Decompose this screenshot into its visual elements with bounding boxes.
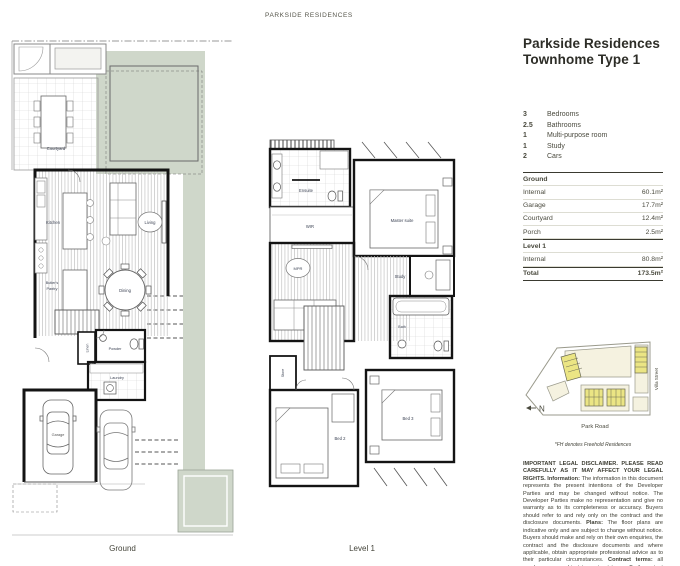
- area-section-ground: Ground: [523, 173, 663, 186]
- area-value: 12.4m²: [642, 215, 663, 222]
- spec-qty: 1: [523, 132, 547, 139]
- stairs: [55, 310, 99, 334]
- area-section-level1: Level 1: [523, 239, 663, 253]
- park-road-label: Park Road: [581, 424, 608, 430]
- roof-hatch-top: [362, 142, 441, 158]
- walk-in-robe: WIR: [270, 207, 354, 243]
- spec-label: Multi-purpose room: [547, 132, 663, 139]
- courtyard: Courtyard: [14, 78, 98, 170]
- island-bench-icon: [63, 193, 87, 249]
- garage-label: Garage: [52, 433, 65, 437]
- wardrobe-icon: [332, 394, 354, 422]
- area-value: 2.5m²: [646, 229, 663, 236]
- ground-caption: Ground: [10, 544, 235, 553]
- bathroom: Bath: [390, 296, 452, 358]
- area-row: Garage 17.7m²: [523, 200, 663, 213]
- dining-label: Dining: [119, 288, 132, 293]
- bedside-table-icon: [443, 246, 452, 254]
- area-row-total: Total 173.5m²: [523, 267, 663, 280]
- master-suite: Master suite: [354, 160, 454, 256]
- area-row: Internal 80.8m²: [523, 253, 663, 266]
- area-label: Internal: [523, 189, 546, 196]
- area-label: Internal: [523, 256, 546, 263]
- washer-icon: [104, 382, 116, 394]
- page-title: Parkside Residences Townhome Type 1: [523, 36, 663, 67]
- spec-qty: 1: [523, 143, 547, 150]
- bed3-label: Bed 3: [403, 416, 415, 421]
- area-label: Garage: [523, 202, 546, 209]
- mpr-label: MPR: [294, 266, 303, 271]
- bed2-label: Bed 2: [335, 436, 347, 441]
- powder-room: Powder: [96, 330, 145, 362]
- site-map-svg: N Villa Street Park Road: [523, 335, 663, 435]
- spec-row-bathrooms: 2.5 Bathrooms: [523, 120, 663, 131]
- spec-list: 3 Bedrooms 2.5 Bathrooms 1 Multi-purpose…: [523, 109, 663, 162]
- villa-street-label: Villa Street: [654, 367, 659, 390]
- title-line2: Townhome Type 1: [523, 52, 663, 68]
- area-section-label: Level 1: [523, 243, 546, 250]
- ensuite: Ensuite: [270, 149, 350, 207]
- toilet-icon: [328, 191, 336, 201]
- basin-icon: [273, 183, 280, 191]
- level1-caption: Level 1: [262, 544, 462, 553]
- ensuite-label: Ensuite: [299, 188, 314, 193]
- area-label: Porch: [523, 229, 541, 236]
- bath-label: Bath: [398, 325, 405, 329]
- total-label: Total: [523, 270, 539, 277]
- bedroom-2: Bed 2: [270, 390, 358, 486]
- tv-unit-icon: [292, 245, 332, 249]
- basin-icon: [398, 340, 406, 348]
- sofa-icon: [110, 183, 136, 235]
- desk-icon: [436, 260, 450, 290]
- area-value: 80.8m²: [642, 256, 663, 263]
- spec-qty: 2: [523, 153, 547, 160]
- brochure-page: PARKSIDE RESIDENCES: [0, 0, 680, 566]
- wir-label: WIR: [306, 224, 314, 229]
- chair-icon: [425, 271, 433, 279]
- disclaimer-text: The information in this document represe…: [523, 476, 663, 527]
- level1-floor-plan: Ensuite WIR Master suite: [262, 138, 462, 493]
- car-icon: [97, 410, 135, 490]
- study-label: Study: [395, 274, 407, 279]
- level1-floor-svg: Ensuite WIR Master suite: [262, 138, 462, 493]
- spec-label: Bedrooms: [547, 111, 663, 118]
- store-label: Store: [281, 369, 285, 378]
- bedside-table-icon: [370, 376, 379, 384]
- bedside-table-icon: [443, 178, 452, 186]
- ground-floor-plan: Courtyard Kitchen: [10, 38, 235, 538]
- area-row: Porch 2.5m²: [523, 226, 663, 239]
- roof-hatch-bottom: [374, 468, 447, 486]
- toilet-icon: [434, 341, 442, 351]
- map-footnote: *FH denotes Freehold Residences: [523, 442, 663, 448]
- bathtub-icon: [393, 298, 449, 315]
- tv-unit-icon: [162, 201, 166, 243]
- balcony-screen: [270, 140, 334, 149]
- toilet-icon: [130, 339, 138, 349]
- powder-label: Powder: [109, 347, 123, 351]
- cooktop-icon: [35, 243, 47, 273]
- store-cupboard: Store: [270, 356, 296, 390]
- area-section-label: Ground: [523, 176, 548, 183]
- title-line1: Parkside Residences: [523, 36, 663, 52]
- area-value: 17.7m²: [642, 202, 663, 209]
- spec-row-mpr: 1 Multi-purpose room: [523, 131, 663, 142]
- dining-area: Dining: [99, 264, 151, 316]
- stairs: [304, 306, 344, 370]
- north-label: N: [539, 404, 545, 413]
- courtyard-label: Courtyard: [47, 146, 66, 151]
- car-icon: [40, 400, 76, 474]
- site-map: N Villa Street Park Road *FH denotes Fre…: [523, 335, 663, 448]
- porch: [14, 44, 106, 74]
- brand-header: PARKSIDE RESIDENCES: [265, 12, 353, 19]
- basin-icon: [100, 335, 107, 342]
- spec-row-cars: 2 Cars: [523, 152, 663, 163]
- disclaimer-plans-label: Plans:: [586, 520, 607, 526]
- linen-label: Linen: [86, 344, 90, 353]
- area-table: Ground Internal 60.1m² Garage 17.7m² Cou…: [523, 172, 663, 281]
- basin-icon: [273, 161, 280, 169]
- total-value: 173.5m²: [638, 270, 663, 277]
- spec-row-study: 1 Study: [523, 141, 663, 152]
- laundry-label: Laundry: [110, 376, 124, 380]
- spec-qty: 2.5: [523, 122, 547, 129]
- bed-icon: [382, 390, 442, 440]
- linen-cupboard: Linen: [78, 332, 95, 364]
- master-suite-label: Master suite: [391, 218, 414, 223]
- shower-icon: [320, 151, 348, 169]
- area-label: Courtyard: [523, 215, 553, 222]
- legal-disclaimer: IMPORTANT LEGAL DISCLAIMER. PLEASE READ …: [523, 461, 663, 566]
- outdoor-table-icon: [41, 96, 66, 148]
- kitchen-label: Kitchen: [46, 220, 61, 225]
- disclaimer-contract-label: Contract terms:: [608, 557, 657, 563]
- butlers-pantry-label-2: Pantry: [47, 287, 58, 291]
- butlers-pantry-label-1: Butler's: [46, 281, 59, 285]
- bedroom-3: Bed 3: [366, 370, 454, 462]
- info-panel: Parkside Residences Townhome Type 1 3 Be…: [523, 36, 663, 566]
- area-row: Courtyard 12.4m²: [523, 213, 663, 226]
- spec-label: Cars: [547, 153, 663, 160]
- living-label: Living: [145, 220, 157, 225]
- spec-row-bedrooms: 3 Bedrooms: [523, 109, 663, 120]
- spec-label: Study: [547, 143, 663, 150]
- area-value: 60.1m²: [642, 189, 663, 196]
- spec-label: Bathrooms: [547, 122, 663, 129]
- bed-icon: [276, 408, 328, 478]
- spec-qty: 3: [523, 111, 547, 118]
- ground-floor-svg: Courtyard Kitchen: [10, 38, 235, 538]
- area-row: Internal 60.1m²: [523, 186, 663, 199]
- bedside-table-icon: [370, 446, 379, 454]
- garage: Garage: [24, 390, 96, 482]
